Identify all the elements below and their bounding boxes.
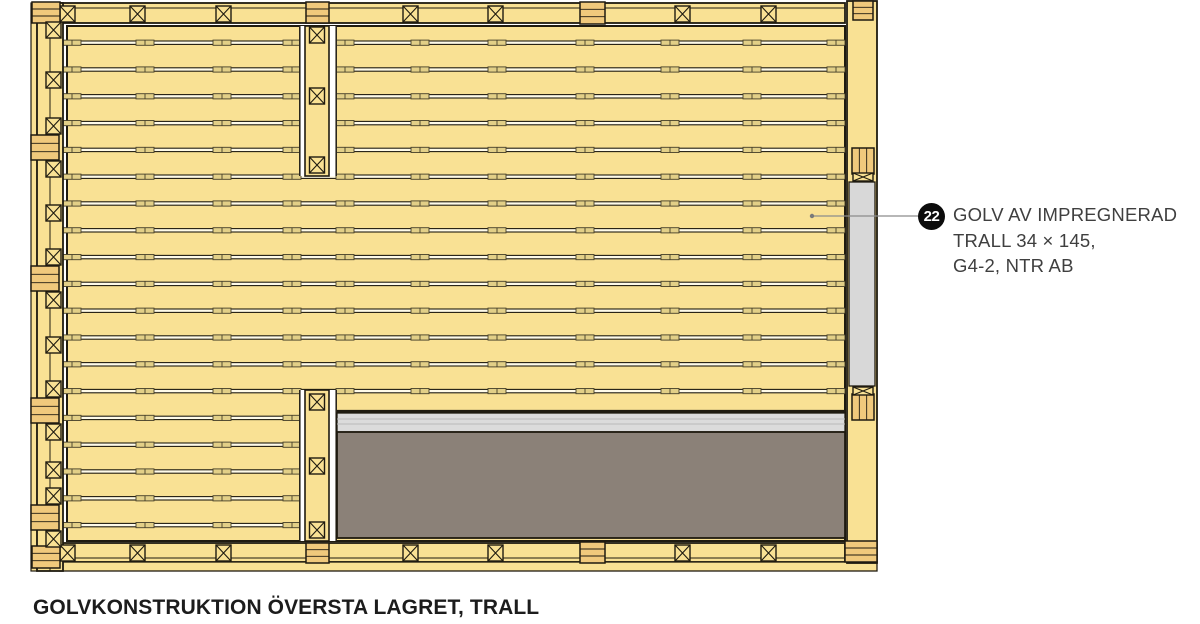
- drawing-canvas: 22 GOLV AV IMPREGNERAD TRALL 34 × 145, G…: [0, 0, 1200, 624]
- floor-plan-drawing: [0, 0, 1200, 624]
- callout-line-1: GOLV AV IMPREGNERAD: [953, 202, 1177, 228]
- callout-number: 22: [924, 208, 940, 225]
- joist-divider-top: [299, 26, 337, 176]
- callout-text-block: GOLV AV IMPREGNERAD TRALL 34 × 145, G4-2…: [953, 202, 1177, 279]
- callout-line-2: TRALL 34 × 145,: [953, 228, 1177, 254]
- drawing-title: GOLVKONSTRUKTION ÖVERSTA LAGRET, TRALL: [33, 596, 539, 620]
- callout-number-badge: 22: [918, 203, 945, 230]
- joist-divider-bottom: [299, 390, 337, 541]
- callout-line-3: G4-2, NTR AB: [953, 253, 1177, 279]
- right-gravel-strip: [849, 182, 875, 386]
- lower-deck-section: [337, 411, 845, 538]
